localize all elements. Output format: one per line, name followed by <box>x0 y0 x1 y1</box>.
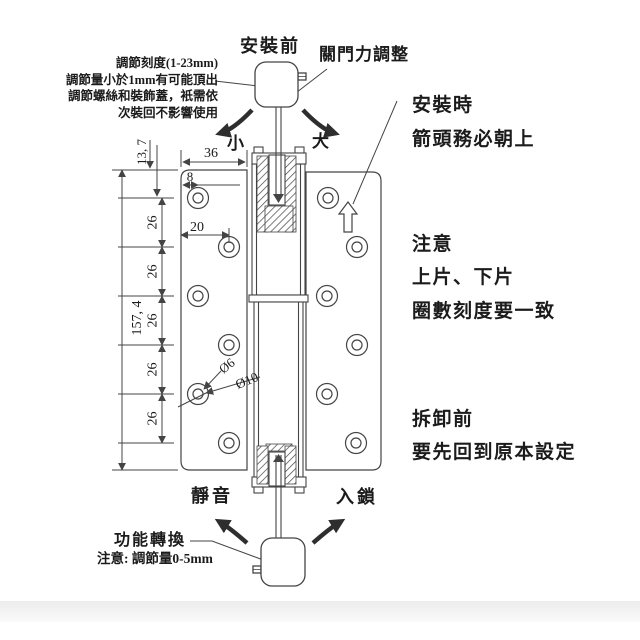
diagram-canvas: 36 8 20 26 26 26 26 26 157, 4 13, 7 Ø6 Ø… <box>0 0 640 640</box>
screw-hole <box>346 433 367 454</box>
screw-hole <box>188 384 209 405</box>
right-leaf <box>306 172 381 470</box>
label-caution-title: 注意 <box>412 234 453 257</box>
dim-edge-to-hole: 8 <box>187 169 194 184</box>
rotate-lock-arrow <box>313 522 340 543</box>
screw-hole <box>317 286 338 307</box>
note-line-1: 調節刻度(1-23mm) <box>58 55 218 72</box>
dim-hole-pitch: 26 <box>146 412 161 426</box>
dim-hole-pitch: 26 <box>146 265 161 279</box>
rotate-silent-arrow <box>220 522 247 543</box>
dim-hole-pitch: 26 <box>146 216 161 230</box>
label-caution-leaves: 上片、下片 <box>412 267 515 290</box>
screw-hole <box>188 188 209 209</box>
label-restore-setting: 要先回到原本設定 <box>412 442 576 465</box>
label-silent: 靜音 <box>191 486 233 508</box>
label-before-removal: 拆卸前 <box>412 409 474 432</box>
dim-hole-pitch: 26 <box>146 314 161 328</box>
dim-top-to-first-hole: 13, 7 <box>134 139 149 166</box>
left-leaf <box>181 170 247 470</box>
screw-hole <box>347 237 368 258</box>
screw-hole <box>347 335 368 356</box>
rotate-large-arrow <box>303 110 334 133</box>
dim-hole-offset: 20 <box>190 220 204 235</box>
label-lock: 入鎖 <box>336 487 378 509</box>
note-line-3: 調節螺絲和裝飾蓋，衹需依 <box>58 88 218 105</box>
label-function-note: 注意: 調節量0-5mm <box>97 551 213 567</box>
dim-total-height: 157, 4 <box>130 301 145 336</box>
adjustment-note: 調節刻度(1-23mm) 調節量小於1mm有可能頂出 調節螺絲和裝飾蓋，衹需依 … <box>58 55 218 121</box>
label-large: 大 <box>312 132 329 152</box>
dim-leaf-width: 36 <box>204 146 218 161</box>
label-close-force: 關門力調整 <box>319 45 409 65</box>
rotate-small-arrow <box>221 110 252 133</box>
label-install-time: 安裝時 <box>412 95 474 118</box>
label-arrow-must-up: 箭頭務必朝上 <box>412 129 535 152</box>
bottom-edge-band <box>0 601 640 622</box>
screw-hole <box>219 335 240 356</box>
bottom-adjuster-knob <box>253 538 305 586</box>
note-line-2: 調節量小於1mm有可能頂出 <box>58 72 218 89</box>
label-caution-scale: 圈數刻度要一致 <box>412 301 556 324</box>
label-before-install: 安裝前 <box>240 36 300 58</box>
screw-hole <box>317 384 338 405</box>
label-function-switch: 功能轉換 <box>114 531 186 550</box>
screw-hole <box>219 433 240 454</box>
label-small: 小 <box>227 134 244 154</box>
screw-hole <box>188 286 209 307</box>
dim-hole-pitch: 26 <box>146 363 161 377</box>
screw-hole <box>318 188 339 209</box>
top-adjuster-knob <box>255 62 306 107</box>
note-line-4: 次裝回不影響使用 <box>58 105 218 122</box>
